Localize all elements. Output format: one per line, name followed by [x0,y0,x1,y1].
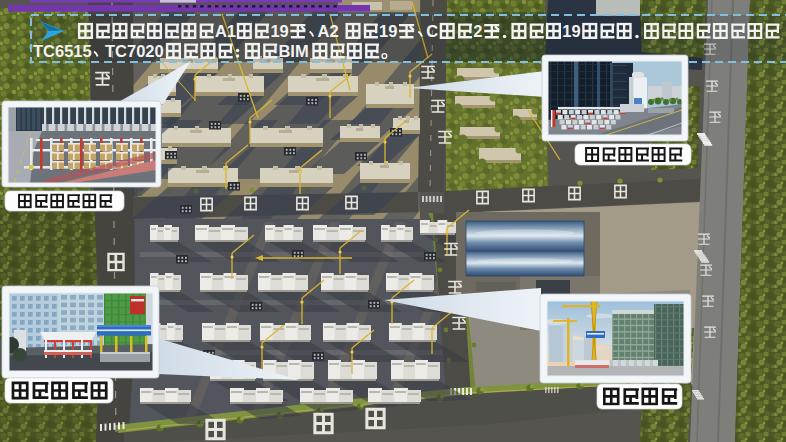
svg-text:19: 19 [379,22,397,40]
svg-text:19: 19 [270,22,288,40]
svg-text:19: 19 [562,22,580,40]
svg-text:A2: A2 [318,22,339,40]
svg-text:TC7020: TC7020 [105,42,164,60]
svg-text:2: 2 [473,22,482,40]
svg-text:C: C [426,22,438,40]
svg-text:A1: A1 [215,22,236,40]
svg-text:TC6515: TC6515 [33,42,92,60]
svg-text:BIM: BIM [278,42,308,60]
